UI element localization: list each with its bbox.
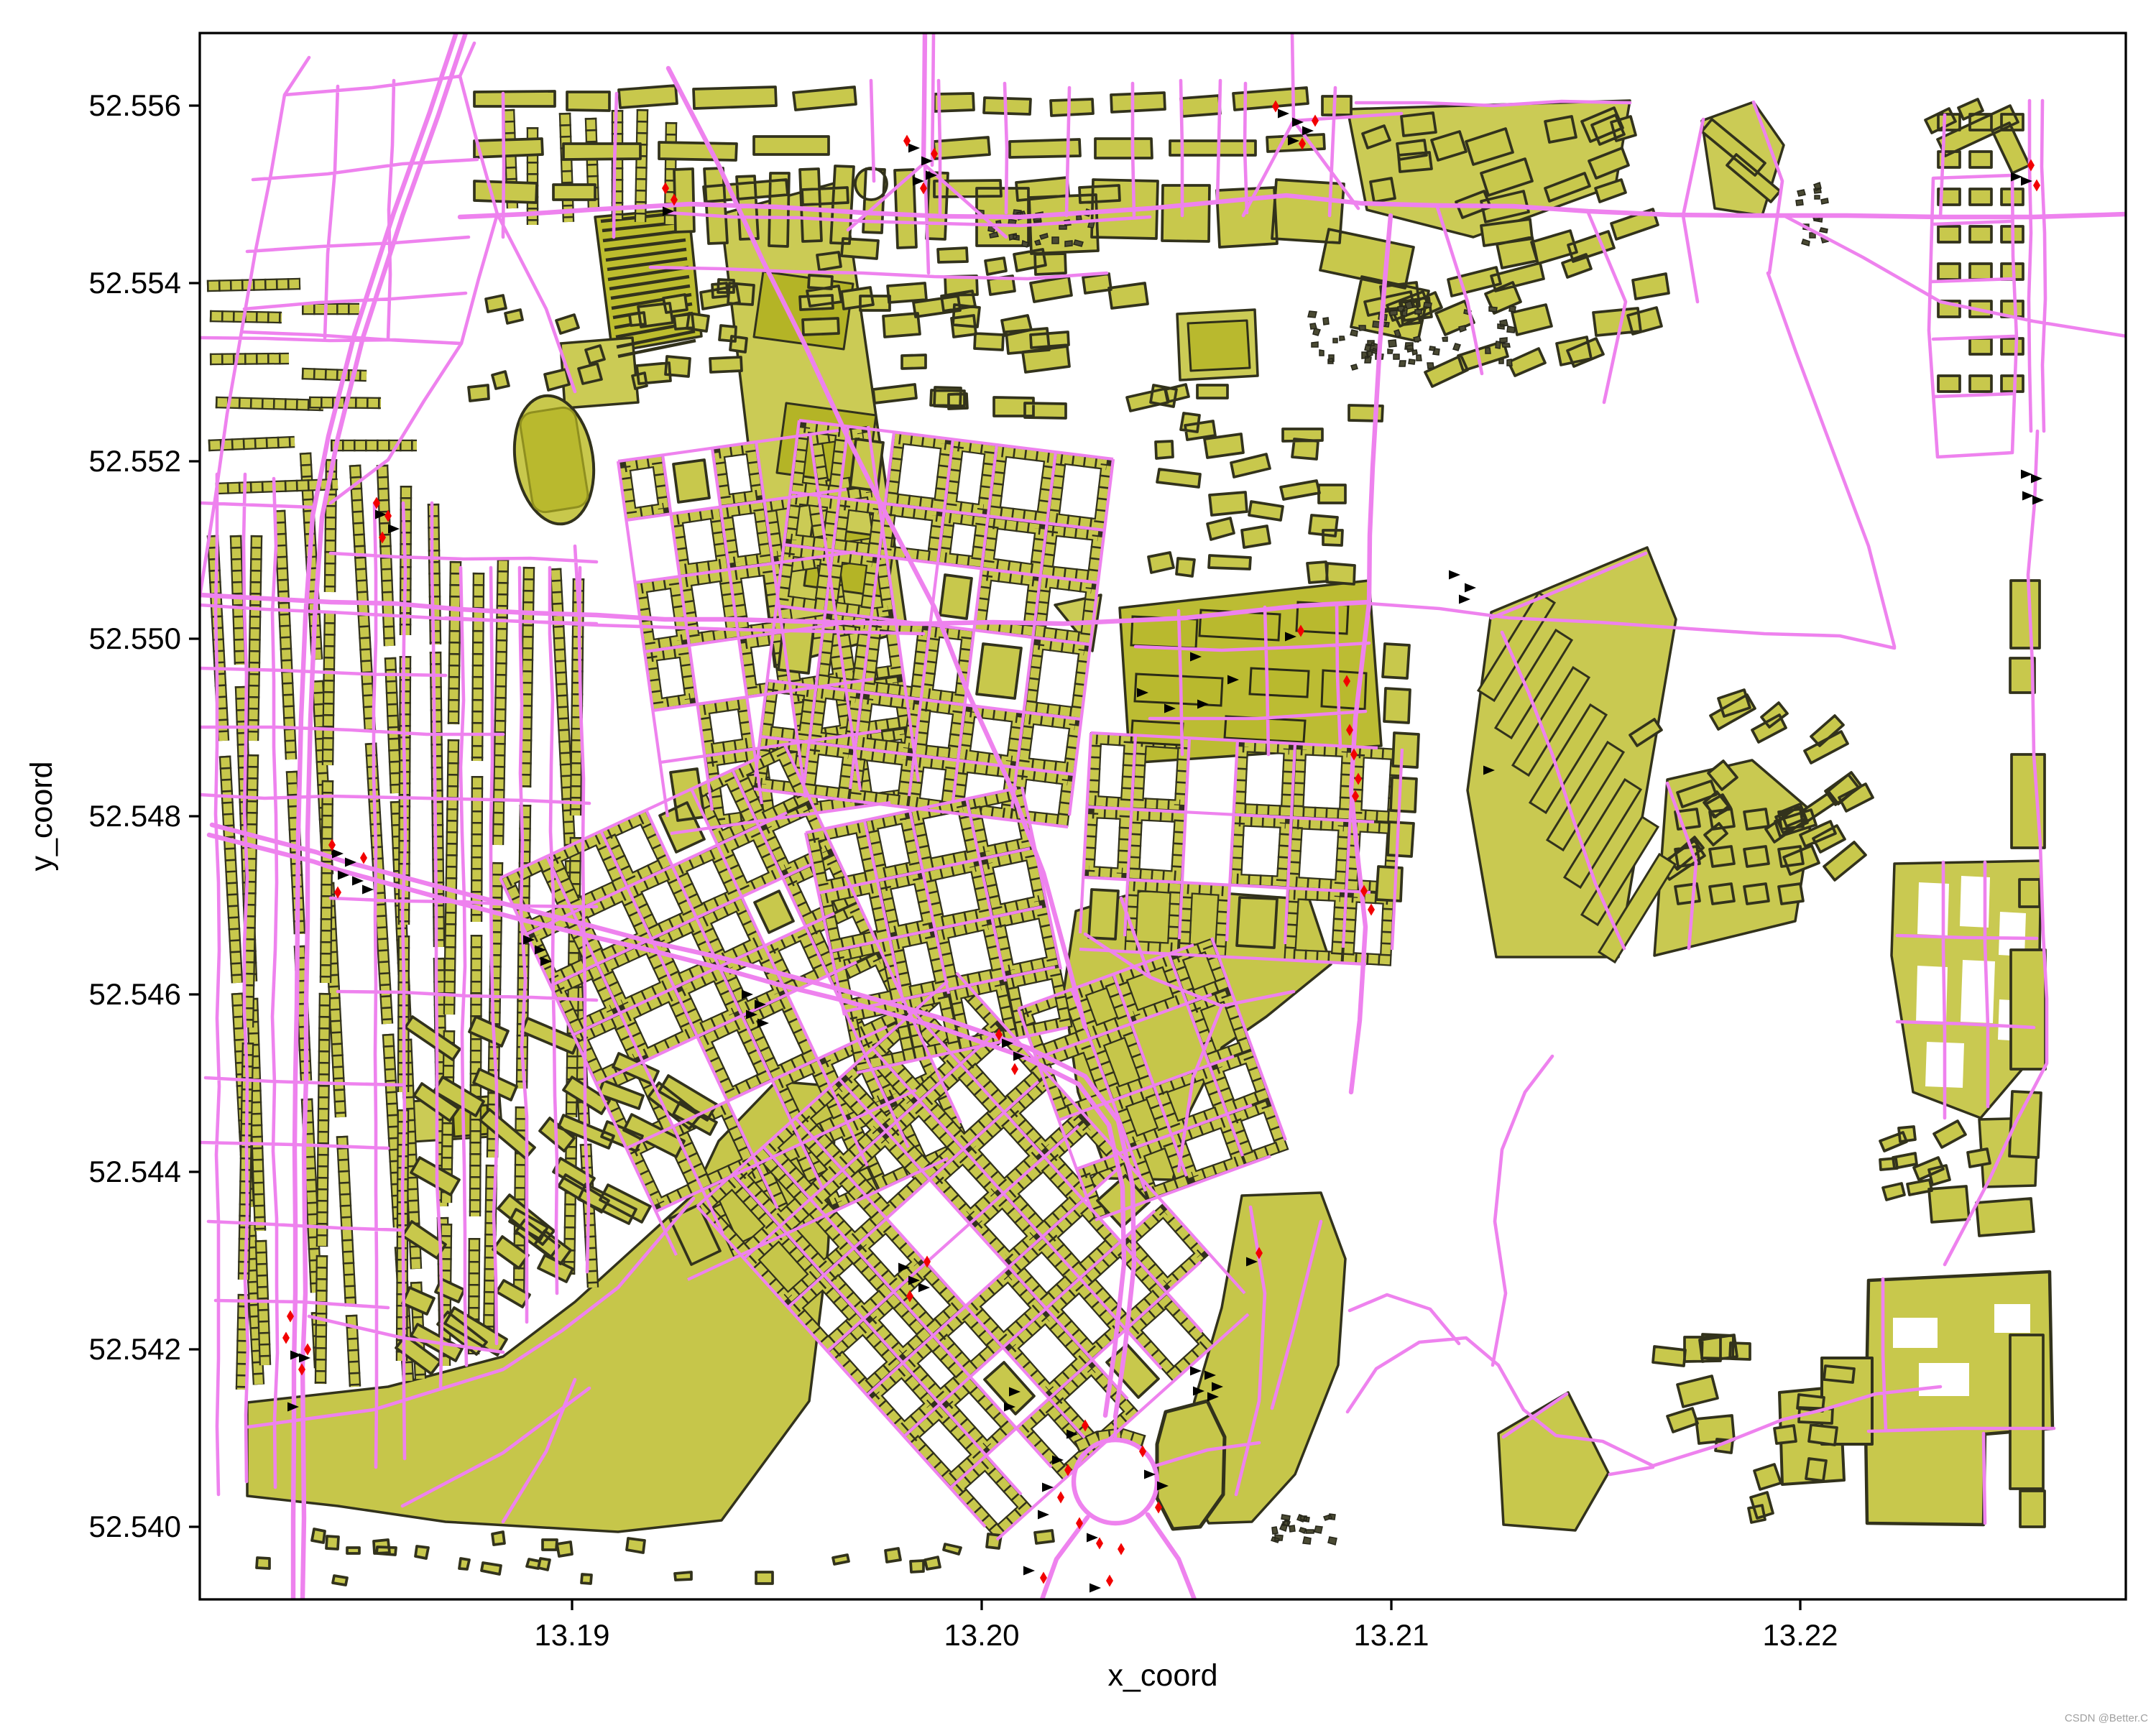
svg-text:52.554: 52.554 bbox=[89, 266, 181, 300]
svg-text:13.20: 13.20 bbox=[944, 1618, 1019, 1652]
svg-text:52.546: 52.546 bbox=[89, 977, 181, 1011]
svg-text:52.550: 52.550 bbox=[89, 622, 181, 655]
svg-text:52.542: 52.542 bbox=[89, 1332, 181, 1366]
svg-text:13.21: 13.21 bbox=[1353, 1618, 1429, 1652]
svg-text:CSDN @Better.C: CSDN @Better.C bbox=[2065, 1712, 2148, 1724]
svg-text:52.556: 52.556 bbox=[89, 88, 181, 122]
svg-text:52.540: 52.540 bbox=[89, 1510, 181, 1543]
svg-text:13.19: 13.19 bbox=[534, 1618, 609, 1652]
svg-text:52.552: 52.552 bbox=[89, 444, 181, 478]
svg-text:52.548: 52.548 bbox=[89, 799, 181, 833]
svg-text:y_coord: y_coord bbox=[24, 762, 59, 872]
svg-text:52.544: 52.544 bbox=[89, 1155, 181, 1188]
svg-text:x_coord: x_coord bbox=[1108, 1658, 1218, 1693]
svg-text:13.22: 13.22 bbox=[1762, 1618, 1838, 1652]
